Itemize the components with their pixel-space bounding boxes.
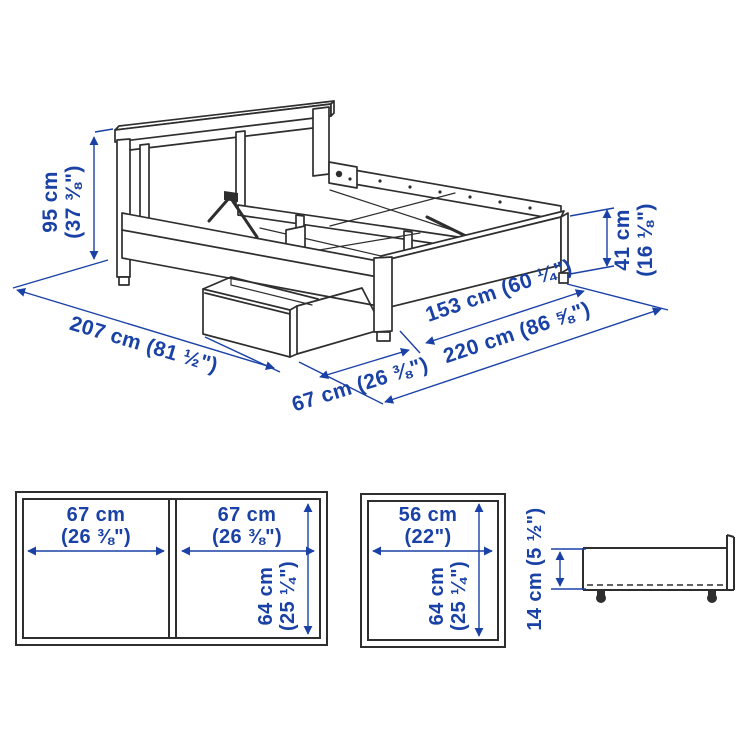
box-depth-metric: 64 cm [426, 567, 448, 626]
headboard-slat-1 [140, 144, 149, 220]
headboard-left-foot [119, 277, 129, 285]
center-divider [169, 499, 176, 638]
pullout-guide-right [400, 331, 420, 353]
headboard-height-tick-bottom [13, 260, 108, 288]
box-side-view: 14 cm (5 ½") [524, 507, 734, 630]
right-box-width-metric: 67 cm [218, 504, 277, 526]
storage-box-panel-thickness [290, 306, 297, 357]
box-end-panel [727, 535, 734, 590]
headboard-height-tick-top [95, 129, 113, 132]
lift-brace [209, 197, 230, 221]
single-box-top-view: 56 cm (22") 64 cm (25 ¼") [361, 494, 505, 647]
headboard-height-imperial: (37 ⅜") [62, 165, 85, 238]
bracket-hole-small [348, 177, 351, 180]
caster-wheel [707, 593, 717, 603]
product-dimension-diagram: 95 cm (37 ⅜") 207 cm (81 ½") 67 cm (26 ⅜… [0, 0, 750, 750]
rail-hole [498, 200, 501, 203]
headboard-bar-end-cap [331, 101, 334, 116]
box-depth-imperial: (25 ¼") [277, 561, 299, 631]
left-box-width-metric: 67 cm [67, 504, 126, 526]
box-depth-metric: 64 cm [255, 567, 277, 626]
rail-hole [378, 179, 381, 182]
right-box-width-imperial: (26 ⅜") [212, 526, 282, 548]
pullout-label: 67 cm (26 ⅜") [289, 353, 431, 416]
footboard-height-metric: 41 cm [611, 209, 634, 271]
box-body [583, 548, 734, 590]
box-width-imperial: (22") [404, 526, 451, 548]
box-height-ticks [551, 549, 586, 589]
headboard-right-post [313, 107, 329, 176]
rail-hole [528, 206, 531, 209]
rail-hole [468, 195, 471, 198]
box-height-label: 14 cm (5 ½") [524, 507, 546, 630]
storage-box-front-panel [203, 289, 290, 357]
left-box-width-imperial: (26 ⅜") [61, 526, 131, 548]
headboard-height-metric: 95 cm [39, 171, 62, 233]
footboard-height-imperial: (16 ⅛") [634, 203, 657, 276]
box-depth-imperial: (25 ¼") [448, 561, 470, 631]
rail-hole [438, 190, 441, 193]
double-box-top-view: 67 cm (26 ⅜") 67 cm (26 ⅜") 64 cm (25 ¼"… [16, 492, 327, 645]
bracket-hole [336, 171, 342, 177]
rail-hole [408, 185, 411, 188]
caster-wheel [596, 593, 606, 603]
back-rail-bracket [329, 162, 357, 188]
footboard-left-foot [377, 332, 390, 341]
back-rail [331, 166, 561, 220]
diagram-canvas: 95 cm (37 ⅜") 207 cm (81 ½") 67 cm (26 ⅜… [0, 0, 750, 750]
footboard-left-post [374, 257, 392, 332]
footboard-height-tick-bottom [570, 266, 614, 274]
box-width-metric: 56 cm [399, 504, 458, 526]
